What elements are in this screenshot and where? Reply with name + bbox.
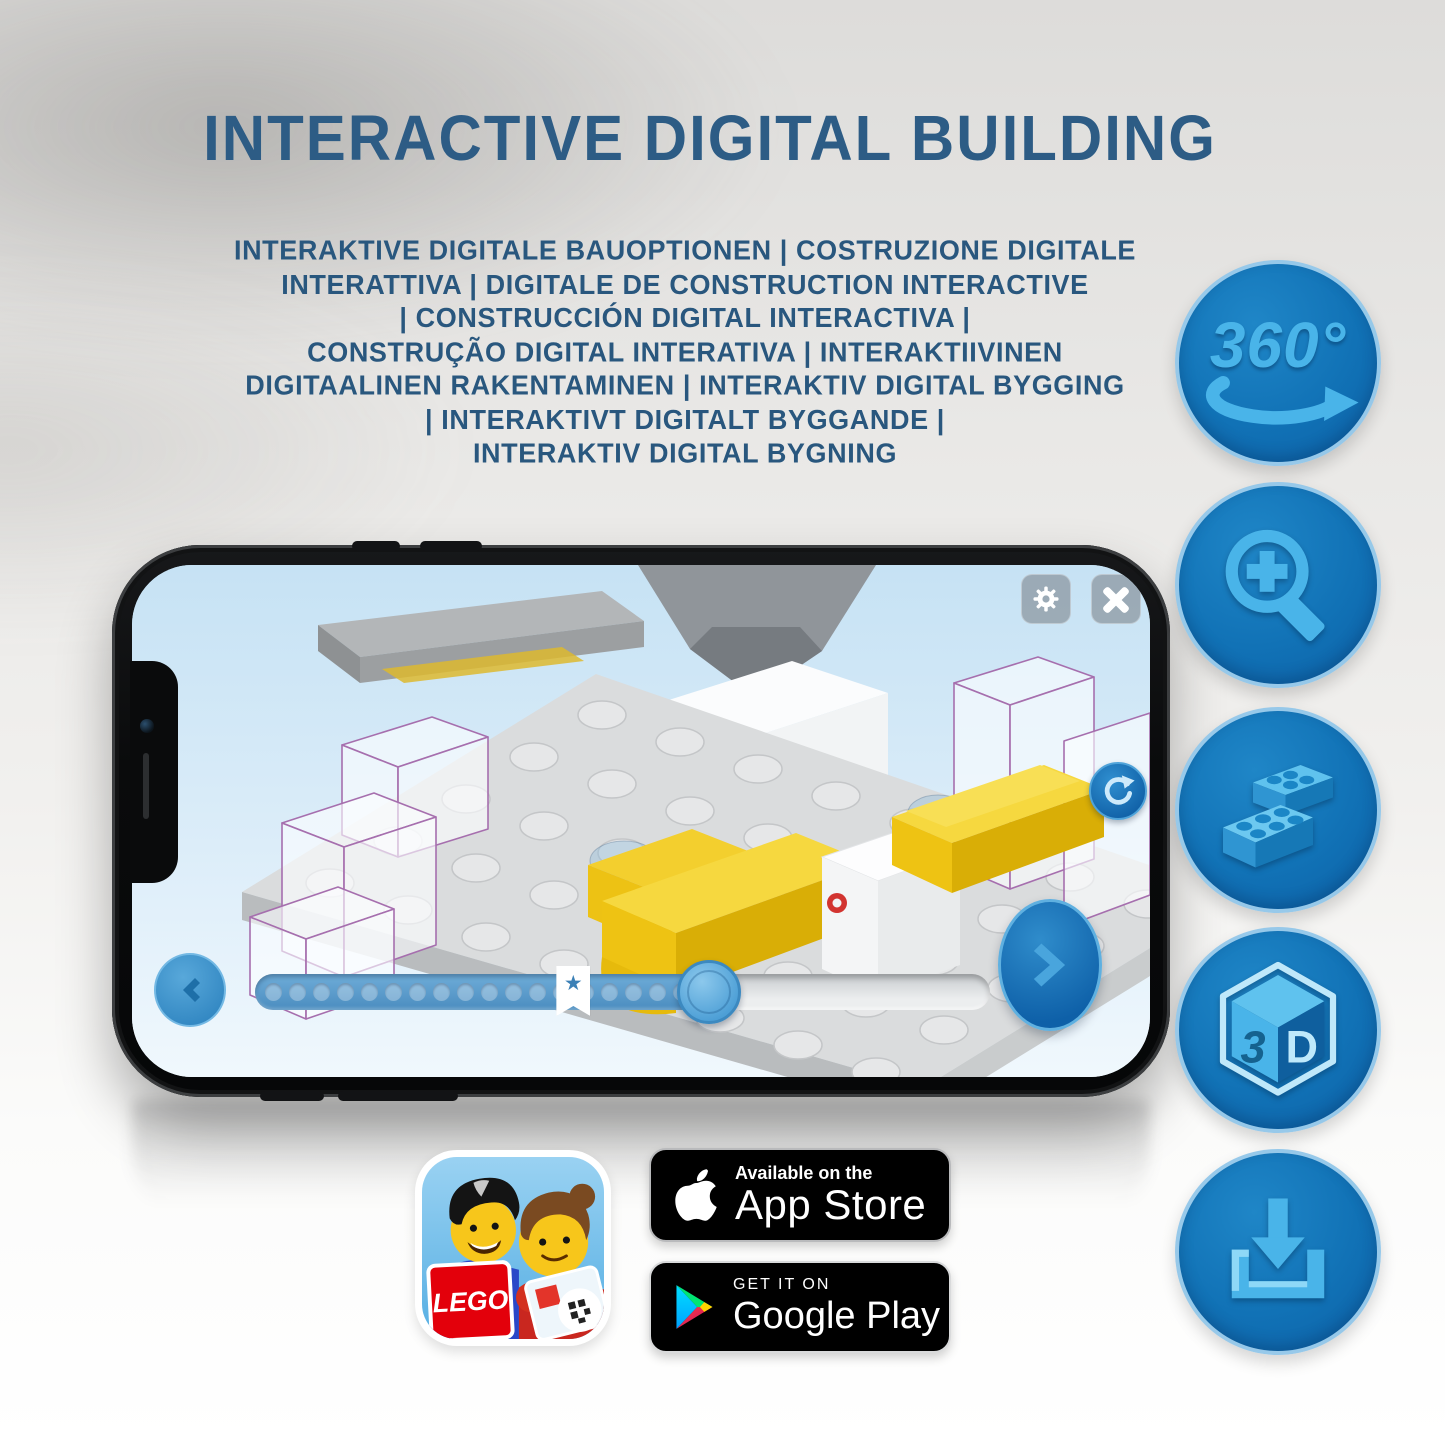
page-title: INTERACTIVE DIGITAL BUILDING [0, 102, 1420, 175]
close-icon [1100, 583, 1132, 615]
lego-app-icon: LEGO [415, 1150, 611, 1346]
progress-dot [649, 983, 666, 1001]
settings-button[interactable] [1021, 574, 1071, 624]
progress-dot [409, 983, 426, 1001]
phone-mockup: ★ [112, 545, 1170, 1097]
phone-volume-button [420, 541, 482, 551]
google-play-tagline: GET IT ON [733, 1276, 940, 1294]
rotate-icon [1099, 772, 1137, 810]
progress-slider[interactable]: ★ [255, 974, 990, 1010]
phone-volume-button [352, 541, 400, 551]
slider-thumb[interactable] [677, 960, 741, 1024]
phone-speaker [143, 753, 149, 819]
play-triangle-icon [673, 1283, 717, 1331]
progress-dot [361, 983, 378, 1001]
phone-notch [130, 661, 178, 883]
progress-dot [337, 983, 354, 1001]
app-store-badge[interactable]: Available on the App Store [649, 1148, 951, 1242]
gear-icon [1030, 583, 1062, 615]
subtitle-line: DIGITAALINEN RAKENTAMINEN | INTERAKTIV D… [150, 369, 1220, 403]
download-icon [1205, 1179, 1351, 1325]
marketing-graphic: INTERACTIVE DIGITAL BUILDING INTERAKTIVE… [0, 0, 1445, 1445]
phone-reflection [132, 1100, 1150, 1230]
3d-cube-icon: 3 D [1203, 955, 1353, 1105]
feature-download-badge [1175, 1149, 1381, 1355]
app-store-availability-text: Available on the [735, 1163, 926, 1183]
progress-dot [313, 983, 330, 1001]
progress-dot [505, 983, 522, 1001]
progress-dot [625, 983, 642, 1001]
progress-dot [433, 983, 450, 1001]
progress-dot [265, 983, 282, 1001]
lego-bricks-icon [1203, 735, 1353, 885]
app-store-label: App Store [735, 1183, 926, 1227]
phone-screen: ★ [132, 565, 1150, 1077]
feature-brick-badge [1175, 707, 1381, 913]
cube-3-label: 3 [1240, 1022, 1265, 1073]
phone-side-button [260, 1091, 324, 1101]
subtitle-line: | CONSTRUCCIÓN DIGITAL INTERACTIVA | [150, 301, 1220, 335]
magnifier-zoom-in-icon [1210, 517, 1346, 653]
subtitle-line: | INTERAKTIVT DIGITALT BYGGANDE | [150, 402, 1220, 436]
google-play-badge[interactable]: GET IT ON Google Play [649, 1261, 951, 1353]
lego-app-artwork: LEGO [422, 1157, 604, 1339]
phone-camera [140, 719, 154, 733]
feature-3d-badge: 3 D [1175, 927, 1381, 1133]
progress-dot [457, 983, 474, 1001]
google-play-label: Google Play [733, 1294, 940, 1338]
feature-360-badge: 360° [1175, 260, 1381, 466]
multilingual-subtitle: INTERAKTIVE DIGITALE BAUOPTIONEN | COSTR… [150, 233, 1220, 470]
subtitle-line: INTERAKTIVE DIGITALE BAUOPTIONEN | COSTR… [150, 233, 1220, 267]
progress-dot [385, 983, 402, 1001]
chevron-left-icon [172, 972, 208, 1008]
rotation-arrow-icon [1201, 372, 1361, 438]
rotate-view-button[interactable] [1089, 762, 1147, 820]
subtitle-line: INTERAKTIV DIGITAL BYGNING [150, 436, 1220, 470]
feature-zoom-badge [1175, 482, 1381, 688]
cube-d-label: D [1286, 1022, 1319, 1073]
apple-icon [673, 1167, 719, 1223]
subtitle-line: INTERATTIVA | DIGITALE DE CONSTRUCTION I… [150, 267, 1220, 301]
progress-dot [529, 983, 546, 1001]
lego-logo-text: LEGO [432, 1284, 509, 1318]
next-step-button[interactable] [998, 899, 1102, 1031]
subtitle-line: CONSTRUÇÃO DIGITAL INTERATIVA | INTERAKT… [150, 335, 1220, 369]
progress-dot [601, 983, 618, 1001]
phone-side-button [338, 1091, 458, 1101]
previous-step-button[interactable] [154, 953, 226, 1027]
chevron-right-icon [1028, 937, 1072, 993]
progress-fill [255, 974, 711, 1010]
progress-dot [481, 983, 498, 1001]
360-rotation-icon: 360° [1179, 308, 1377, 382]
close-button[interactable] [1091, 574, 1141, 624]
progress-dot [289, 983, 306, 1001]
